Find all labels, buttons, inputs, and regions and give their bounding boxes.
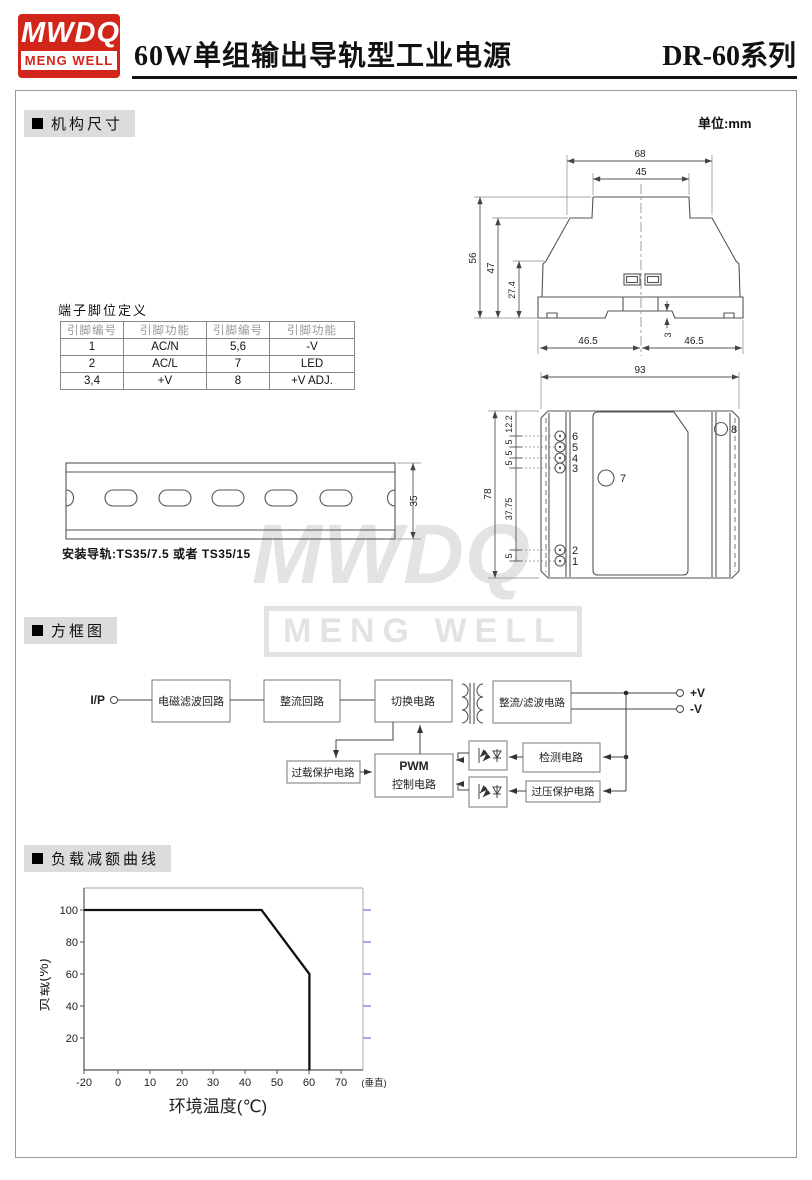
block-detect-label: 检测电路 — [539, 750, 583, 764]
section-heading-mech-label: 机构尺寸 — [51, 113, 123, 134]
block-switching-label: 切换电路 — [391, 694, 435, 708]
pin-table-row: 2 AC/L 7 LED — [61, 356, 355, 373]
dim-78: 78 — [483, 488, 494, 500]
pin-table: 引脚编号 引脚功能 引脚编号 引脚功能 1 AC/N 5,6 -V 2 AC/L… — [60, 321, 355, 390]
section-marker-icon — [32, 118, 43, 129]
pin-col-header: 引脚编号 — [61, 322, 124, 339]
x-tick-note: (垂直) — [361, 1077, 386, 1089]
block-diagram: I/P 电磁滤波回路 整流回路 切换电路 整流/滤波电路 +V -V 检测电路 — [60, 655, 760, 825]
dimension-rail: 35 — [397, 463, 421, 539]
pin-cell: +V — [124, 373, 207, 390]
dim-47: 47 — [486, 262, 497, 274]
rail-note: 安装导轨:TS35/7.5 或者 TS35/15 — [62, 545, 251, 562]
x-tick: 20 — [176, 1077, 188, 1089]
section-heading-block: 方框图 — [24, 617, 117, 644]
dim-46-5-right: 46.5 — [684, 336, 704, 347]
transformer-symbol — [462, 683, 483, 724]
y-tick: 100 — [60, 905, 78, 917]
block-ovp-label: 过压保护电路 — [532, 785, 595, 798]
input-label: I/P — [90, 693, 105, 707]
pin-col-header: 引脚功能 — [270, 322, 355, 339]
y-tick: 20 — [66, 1033, 78, 1045]
series-title: DR-60系列 — [662, 34, 796, 74]
dim-3: 3 — [663, 332, 673, 337]
pin-table-row: 1 AC/N 5,6 -V — [61, 339, 355, 356]
pin-label-3: 3 — [572, 463, 578, 475]
drawing-top-profile: 68 45 56 47 27.4 46.5 46.5 3 — [460, 140, 810, 365]
x-tick: -20 — [76, 1077, 92, 1089]
brand-logo-subtext: MENG WELL — [21, 51, 117, 70]
x-tick: 0 — [115, 1077, 121, 1089]
derating-chart: 100 80 60 40 20 -20 0 10 20 30 40 50 60 … — [40, 875, 480, 1125]
drawing-front-view: 6 5 4 3 2 1 7 8 93 78 12.2 5 5 5 — [460, 360, 810, 595]
pin-cell: 7 — [207, 356, 270, 373]
block-pwm-label-2: 控制电路 — [392, 777, 436, 791]
pin-col-header: 引脚编号 — [207, 322, 270, 339]
rail-outline — [66, 463, 395, 539]
case-front: 6 5 4 3 2 1 7 8 — [541, 411, 739, 578]
pin-cell: LED — [270, 356, 355, 373]
block-pwm-label-1: PWM — [399, 759, 428, 773]
dim-93: 93 — [634, 365, 646, 376]
dimensions-top-profile: 68 45 56 47 27.4 46.5 46.5 3 — [468, 149, 743, 354]
pin-table-title: 端子脚位定义 — [58, 300, 148, 319]
pin-label-7: 7 — [620, 473, 626, 485]
pin-table-header-row: 引脚编号 引脚功能 引脚编号 引脚功能 — [61, 322, 355, 339]
pin-cell: AC/N — [124, 339, 207, 356]
datasheet-page: MWDQ MENG WELL 60W单组输出导轨型工业电源 DR-60系列 机构… — [0, 0, 812, 1180]
chart-axes — [80, 888, 371, 1074]
y-tick: 60 — [66, 969, 78, 981]
output-neg-label: -V — [690, 702, 702, 716]
dim-27-4: 27.4 — [507, 281, 517, 299]
x-tick: 70 — [335, 1077, 347, 1089]
pin-cell: 5,6 — [207, 339, 270, 356]
section-heading-derating: 负载减额曲线 — [24, 845, 171, 872]
pin-label-8: 8 — [731, 424, 737, 436]
section-marker-icon — [32, 625, 43, 636]
dim-5a: 5 — [504, 439, 514, 444]
pin-cell: 2 — [61, 356, 124, 373]
dim-45: 45 — [635, 167, 647, 178]
optocoupler-2 — [469, 777, 526, 807]
right-edge-ticks — [363, 910, 371, 1038]
dim-37-75: 37.75 — [504, 498, 514, 521]
x-tick: 30 — [207, 1077, 219, 1089]
header-rule — [132, 76, 797, 79]
pin-cell: 8 — [207, 373, 270, 390]
dim-5b: 5 — [504, 450, 514, 455]
pin-label-1: 1 — [572, 556, 578, 568]
section-heading-derating-label: 负载减额曲线 — [51, 848, 159, 869]
dim-46-5-left: 46.5 — [578, 336, 598, 347]
block-emi-label: 电磁滤波回路 — [158, 695, 224, 708]
dim-5c: 5 — [504, 460, 514, 465]
pin-cell: AC/L — [124, 356, 207, 373]
block-rectifier-label: 整流回路 — [280, 694, 324, 708]
brand-logo-text: MWDQ — [21, 16, 117, 50]
y-axis-label: 负载(%) — [40, 958, 52, 1011]
pin-cell: -V — [270, 339, 355, 356]
x-axis-label: 环境温度(℃) — [169, 1097, 267, 1116]
section-heading-mech: 机构尺寸 — [24, 110, 135, 137]
x-tick: 50 — [271, 1077, 283, 1089]
y-tick: 40 — [66, 1001, 78, 1013]
drawing-din-rail: 35 — [55, 450, 435, 550]
x-tick: 10 — [144, 1077, 156, 1089]
brand-logo: MWDQ MENG WELL — [18, 14, 120, 78]
dim-35: 35 — [409, 495, 420, 507]
section-heading-block-label: 方框图 — [51, 620, 105, 641]
page-title: 60W单组输出导轨型工业电源 — [134, 34, 512, 74]
pin-cell: +V ADJ. — [270, 373, 355, 390]
x-tick: 60 — [303, 1077, 315, 1089]
section-marker-icon — [32, 853, 43, 864]
pin-table-row: 3,4 +V 8 +V ADJ. — [61, 373, 355, 390]
pin-cell: 1 — [61, 339, 124, 356]
y-tick: 80 — [66, 937, 78, 949]
watermark-box: MENG WELL — [264, 606, 582, 657]
derating-curve-line — [84, 910, 309, 1070]
dim-5d: 5 — [504, 553, 514, 558]
output-pos-label: +V — [690, 686, 705, 700]
pin-cell: 3,4 — [61, 373, 124, 390]
dim-56: 56 — [468, 252, 479, 264]
x-tick: 40 — [239, 1077, 251, 1089]
pin-col-header: 引脚功能 — [124, 322, 207, 339]
block-rect-filter-label: 整流/滤波电路 — [499, 696, 565, 709]
unit-label: 单位:mm — [698, 113, 751, 132]
block-overload-label: 过载保护电路 — [292, 766, 355, 779]
dim-12-2: 12.2 — [504, 415, 514, 433]
optocoupler-1 — [469, 741, 523, 770]
chart-tick-labels: 100 80 60 40 20 -20 0 10 20 30 40 50 60 … — [60, 905, 387, 1089]
dim-68: 68 — [634, 149, 646, 160]
